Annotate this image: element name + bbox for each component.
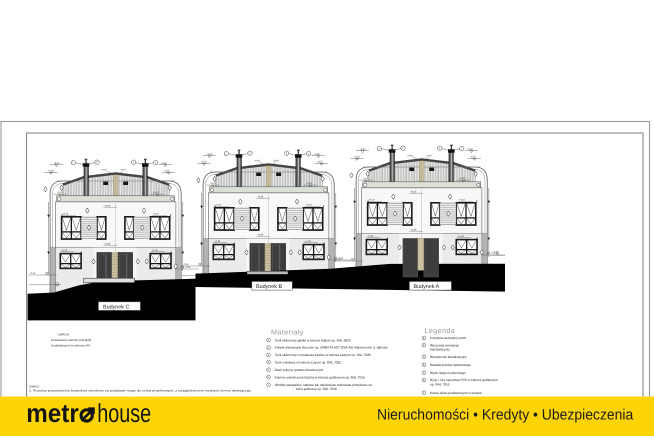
svg-text:-0,35: -0,35 xyxy=(336,258,342,261)
svg-text:+6,20: +6,20 xyxy=(410,190,417,193)
svg-text:+2,95: +2,95 xyxy=(257,233,264,236)
svg-text:Ryny i rury spustowe PVC w kol: Ryny i rury spustowe PVC w kolorze grafi… xyxy=(430,378,498,382)
svg-text:Tynk silikonowy gładki w kolor: Tynk silikonowy gładki w kolorze białym … xyxy=(275,338,351,342)
svg-text:+1,30: +1,30 xyxy=(367,235,374,238)
svg-text:Dach pokryty gontem bitumiczny: Dach pokryty gontem bitumicznym xyxy=(275,368,324,372)
svg-text:Tynk silikonowy o strukturze b: Tynk silikonowy o strukturze betonu w ko… xyxy=(275,353,371,357)
svg-text:Wyrzutnia wentylacji: Wyrzutnia wentylacji xyxy=(430,343,459,347)
svg-text:+5,20: +5,20 xyxy=(459,177,466,180)
svg-text:+6,20: +6,20 xyxy=(257,195,264,198)
svg-text:Kosze okien przełazowych w kol: Kosze okien przełazowych w kolorze xyxy=(430,391,482,395)
svg-text:Budynek C: Budynek C xyxy=(103,304,129,310)
svg-text:Budynek B: Budynek B xyxy=(256,284,282,290)
svg-text:mechanicznej: mechanicznej xyxy=(430,348,450,352)
svg-text:+5,20: +5,20 xyxy=(153,191,160,194)
svg-text:-0,38: -0,38 xyxy=(493,250,499,253)
svg-text:Zestawienie warstw przegród: Zestawienie warstw przegród xyxy=(51,338,91,342)
svg-text:+5,20: +5,20 xyxy=(306,182,313,185)
svg-text:UWAGA:: UWAGA: xyxy=(58,333,71,337)
svg-text:+9,05: +9,05 xyxy=(254,159,261,162)
svg-text:Budynek A: Budynek A xyxy=(414,284,440,290)
svg-text:Materiały: Materiały xyxy=(271,328,304,337)
svg-text:+8,55: +8,55 xyxy=(164,170,171,173)
svg-text:+9,05: +9,05 xyxy=(407,154,414,157)
svg-text:-0,35: -0,35 xyxy=(30,272,36,275)
svg-text:+2,95: +2,95 xyxy=(410,228,417,231)
svg-text:+8,55: +8,55 xyxy=(470,156,477,159)
svg-text:+9,05: +9,05 xyxy=(120,168,127,171)
svg-text:+8,55: +8,55 xyxy=(201,161,208,164)
svg-text:Wylot okapu kuchennego: Wylot okapu kuchennego xyxy=(430,371,466,375)
svg-text:+1,30: +1,30 xyxy=(61,249,68,252)
svg-text:+9,05: +9,05 xyxy=(273,159,280,162)
svg-text:Tynk cokołowy w kolorze szarym: Tynk cokołowy w kolorze szarym np. RAL 7… xyxy=(275,360,342,364)
svg-text:+9,60: +9,60 xyxy=(359,148,366,151)
svg-text:+5,20: +5,20 xyxy=(57,191,64,194)
svg-text:-0,35: -0,35 xyxy=(183,263,189,266)
svg-text:np. RAL 7016: np. RAL 7016 xyxy=(430,382,450,386)
svg-text:Legenda: Legenda xyxy=(425,326,456,335)
svg-text:house: house xyxy=(97,400,151,428)
svg-text:+8,55: +8,55 xyxy=(354,156,361,159)
svg-text:+5,20: +5,20 xyxy=(363,177,370,180)
svg-text:+9,60: +9,60 xyxy=(467,148,474,151)
svg-text:kolor grafitowy np. RAL 7016: kolor grafitowy np. RAL 7016 xyxy=(296,387,337,391)
svg-text:+8,55: +8,55 xyxy=(48,170,55,173)
svg-text:+9,60: +9,60 xyxy=(53,162,60,165)
svg-text:+1,30: +1,30 xyxy=(152,249,159,252)
svg-text:Wywietrznik kanalizacyjny: Wywietrznik kanalizacyjny xyxy=(430,355,467,359)
svg-text:metr: metr xyxy=(26,400,79,428)
svg-text:+9,60: +9,60 xyxy=(206,153,213,156)
svg-text:Nasada komina spalinowego: Nasada komina spalinowego xyxy=(430,363,471,367)
svg-text:+9,05: +9,05 xyxy=(101,168,108,171)
svg-text:budowlanych na arkuszu A4: budowlanych na arkuszu A4 xyxy=(52,344,91,348)
svg-text:+1,30: +1,30 xyxy=(458,235,465,238)
svg-text:Kominy wykończone blachą w kol: Kominy wykończone blachą w kolorze grafi… xyxy=(275,375,365,379)
svg-text:+6,20: +6,20 xyxy=(104,204,111,207)
svg-text:+2,95: +2,95 xyxy=(104,242,111,245)
svg-text:+1,30: +1,30 xyxy=(305,240,312,243)
svg-text:Panele elewacyjne tłoczone np.: Panele elewacyjne tłoczone np. ORBITPLAS… xyxy=(275,346,389,350)
svg-text:Nieruchomości • Kredyty • Ubez: Nieruchomości • Kredyty • Ubezpieczenia xyxy=(377,406,634,423)
svg-text:+1,30: +1,30 xyxy=(214,240,221,243)
svg-text:+9,60: +9,60 xyxy=(314,153,321,156)
svg-text:1. Poziomy posadowienia budynk: 1. Poziomy posadowienia budynków określo… xyxy=(29,389,252,393)
svg-text:+5,20: +5,20 xyxy=(210,182,217,185)
svg-text:+8,55: +8,55 xyxy=(317,161,324,164)
svg-text:+9,60: +9,60 xyxy=(161,162,168,165)
svg-text:-0,05: -0,05 xyxy=(185,266,191,269)
svg-text:+9,05: +9,05 xyxy=(426,154,433,157)
svg-text:Czerpnia wentylacji mech.: Czerpnia wentylacji mech. xyxy=(430,336,467,340)
